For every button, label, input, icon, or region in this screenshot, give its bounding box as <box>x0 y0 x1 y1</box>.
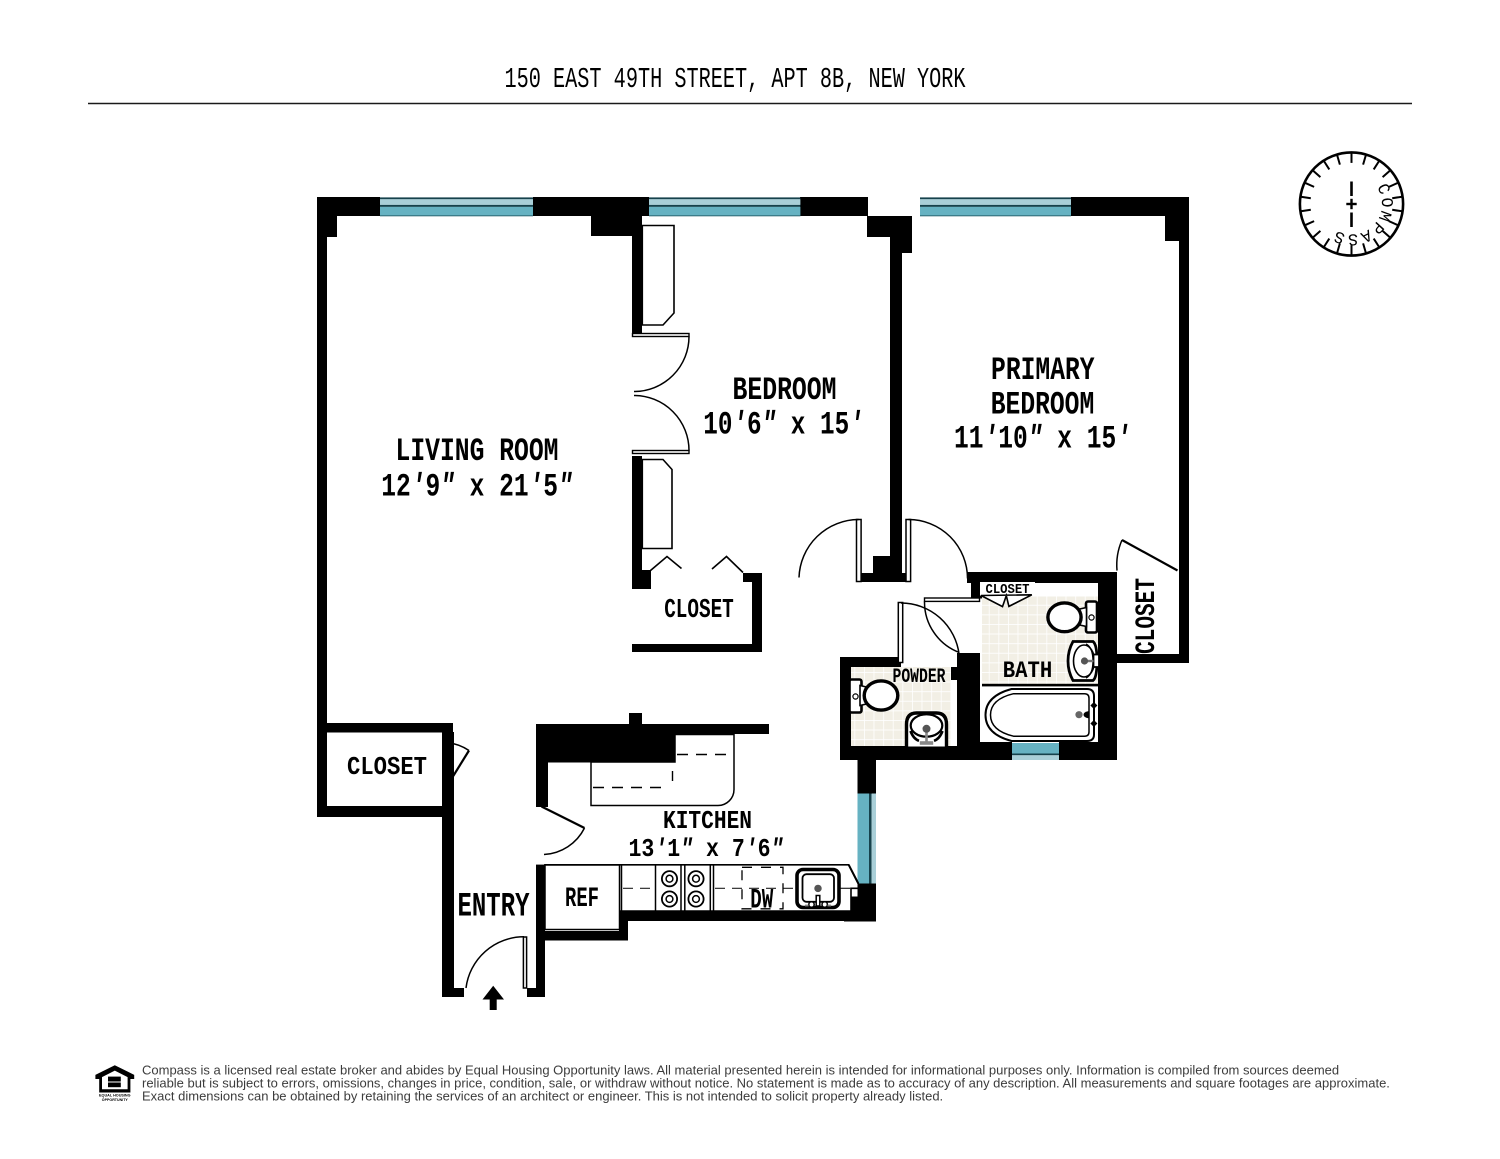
svg-text:LIVING ROOM: LIVING ROOM <box>396 433 559 470</box>
svg-text:POWDER: POWDER <box>893 666 946 689</box>
svg-text:O: O <box>1377 197 1396 208</box>
svg-text:REF: REF <box>565 884 599 915</box>
svg-text:CLOSET: CLOSET <box>1132 578 1163 654</box>
svg-text:11′10″ x 15′: 11′10″ x 15′ <box>954 421 1131 458</box>
svg-text:BEDROOM: BEDROOM <box>991 387 1095 424</box>
svg-text:S: S <box>1348 229 1359 248</box>
svg-text:OPPORTUNITY: OPPORTUNITY <box>102 1097 128 1102</box>
svg-text:13′1″ x 7′6″: 13′1″ x 7′6″ <box>629 834 784 864</box>
svg-text:12′9″ x 21′5″: 12′9″ x 21′5″ <box>381 469 573 506</box>
svg-text:10′6″ x 15′: 10′6″ x 15′ <box>703 407 863 444</box>
svg-text:BATH: BATH <box>1003 659 1053 685</box>
svg-text:CLOSET: CLOSET <box>347 752 427 782</box>
svg-text:DW: DW <box>750 886 773 917</box>
svg-text:PRIMARY: PRIMARY <box>991 352 1095 389</box>
svg-text:CLOSET: CLOSET <box>664 596 734 626</box>
svg-text:150 EAST 49TH STREET, APT 8B,: 150 EAST 49TH STREET, APT 8B, NEW YORK <box>505 63 966 96</box>
svg-text:ENTRY: ENTRY <box>458 888 530 926</box>
svg-text:KITCHEN: KITCHEN <box>663 806 752 836</box>
svg-text:BEDROOM: BEDROOM <box>733 372 837 409</box>
svg-text:Exact dimensions can be obtain: Exact dimensions can be obtained by reta… <box>142 1088 943 1103</box>
